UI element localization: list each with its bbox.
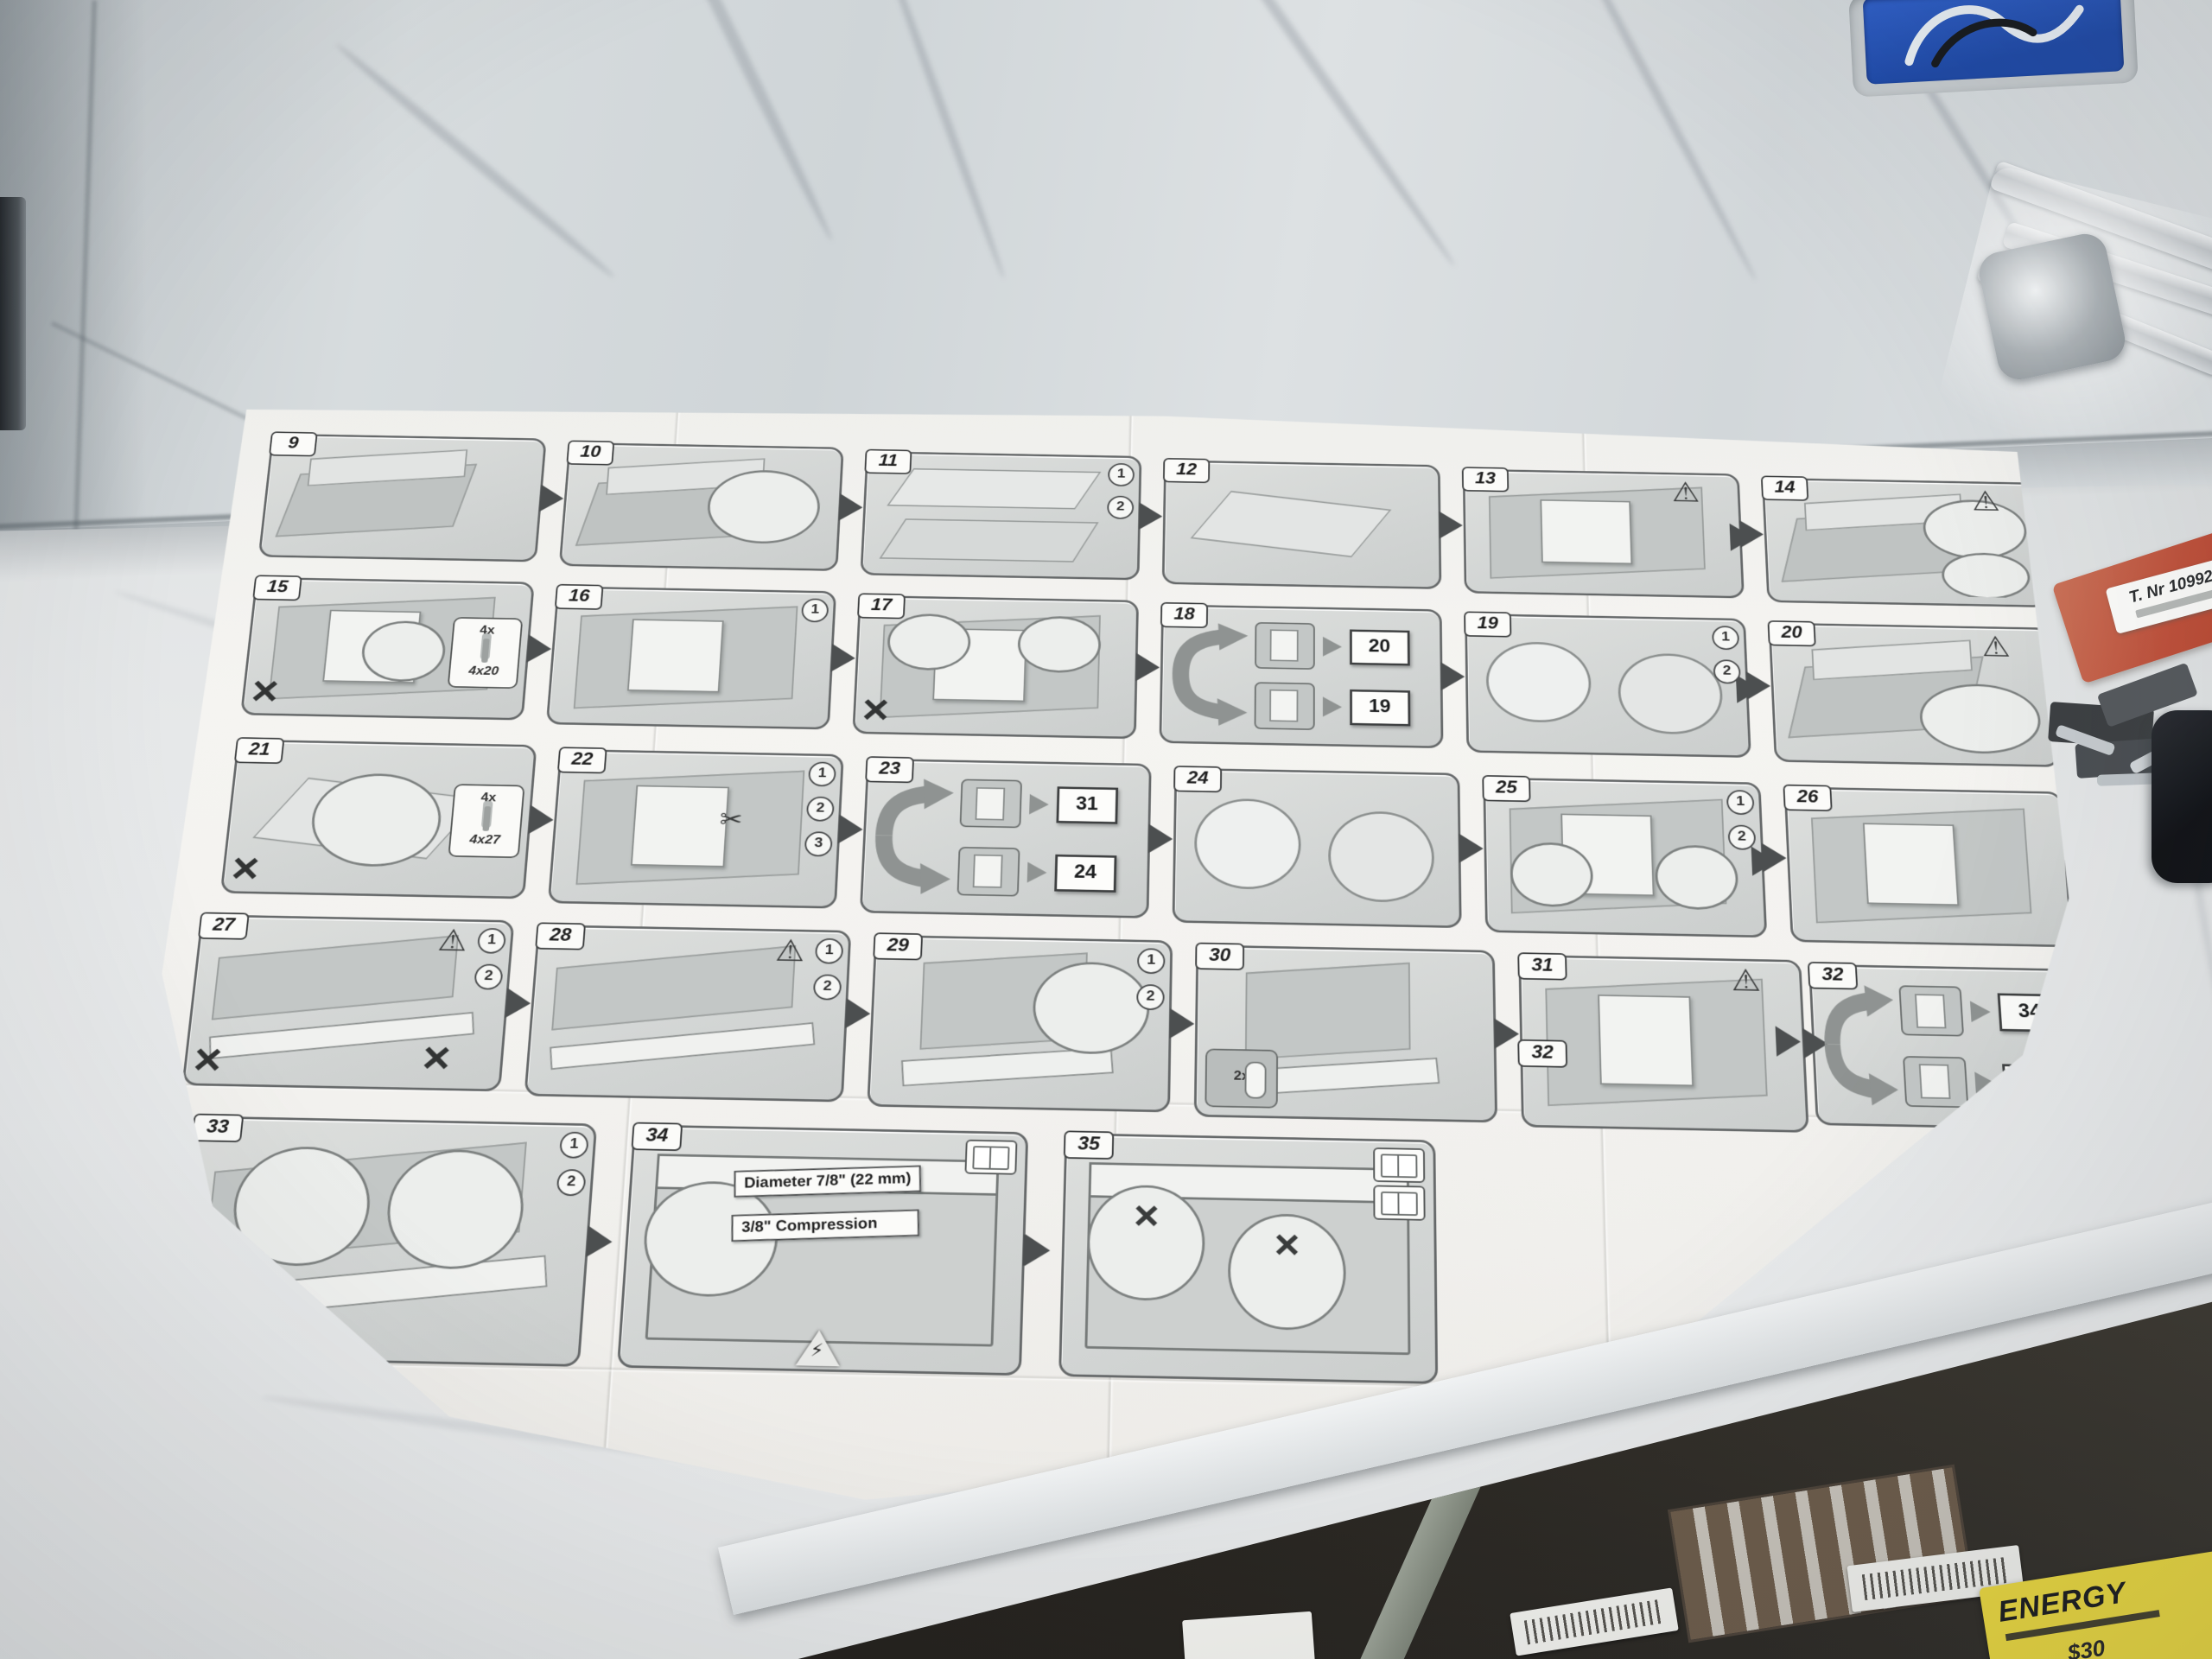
step-number: 1 bbox=[1108, 463, 1135, 486]
panel-number-badge: 22 bbox=[557, 747, 607, 773]
panel-number-badge: 28 bbox=[535, 922, 586, 950]
diagram-text-labels: Diameter 7/8" (22 mm)3/8" Compression bbox=[731, 1166, 922, 1241]
step-number: 1 bbox=[808, 761, 836, 786]
detail-circle bbox=[1032, 961, 1150, 1055]
fork-arrows-icon bbox=[1170, 613, 1255, 735]
panel-diagram-door bbox=[557, 597, 826, 721]
warning-triangle-icon: ⚠ bbox=[1731, 965, 1761, 996]
panel-number-badge: 15 bbox=[252, 575, 302, 601]
panel-number-badge: 13 bbox=[1462, 467, 1509, 492]
step-panel-12: 12 bbox=[1162, 460, 1442, 589]
step-panel-34: 34Diameter 7/8" (22 mm)3/8" Compression bbox=[617, 1124, 1028, 1376]
detail-circle bbox=[705, 469, 822, 544]
option-thumbnail bbox=[1254, 682, 1314, 730]
detail-circle bbox=[1941, 552, 2031, 599]
step-panel-21: 21×4x4x27 bbox=[220, 740, 537, 899]
step-number: 2 bbox=[1136, 984, 1165, 1010]
next-panel-arrow-icon bbox=[830, 644, 855, 672]
panel-number-badge: 20 bbox=[1767, 620, 1815, 646]
warning-triangle-icon: ⚠ bbox=[1971, 487, 2001, 515]
panel-number-badge: 25 bbox=[1482, 775, 1530, 802]
panel-number-badge: 14 bbox=[1761, 475, 1808, 500]
manual-book-icon bbox=[964, 1140, 1017, 1175]
panel-number-badge: 11 bbox=[864, 449, 912, 474]
step-number: 2 bbox=[474, 963, 504, 989]
screw-icon bbox=[481, 639, 490, 663]
option-thumbnail bbox=[957, 847, 1020, 897]
next-panel-arrow-icon bbox=[845, 998, 871, 1029]
panel-diagram-kick bbox=[878, 946, 1161, 1103]
outlet-wires bbox=[1872, 0, 2108, 75]
arrow-right-icon bbox=[1323, 636, 1342, 656]
next-panel-arrow-icon bbox=[1730, 523, 1755, 550]
panel-number-badge: 27 bbox=[198, 912, 250, 940]
next-panel-arrow-icon bbox=[1025, 1234, 1051, 1266]
panel-number-badge: 23 bbox=[865, 756, 914, 783]
next-panel-arrow-icon bbox=[528, 804, 555, 834]
go-to-step-box: 19 bbox=[1350, 689, 1410, 726]
panel-diagram-iso bbox=[270, 444, 537, 553]
next-panel-arrow-icon bbox=[1169, 1008, 1194, 1039]
step-panel-23: 23 3124 bbox=[860, 759, 1152, 918]
step-panel-35: 35 bbox=[1058, 1133, 1438, 1384]
screw-count: 4x bbox=[454, 623, 521, 639]
step-number: 2 bbox=[1107, 496, 1134, 519]
fork-arrows-icon bbox=[871, 768, 962, 906]
step-panel-16: 161 bbox=[546, 586, 836, 729]
option-thumbnail bbox=[1903, 1056, 1968, 1108]
fork-arrows-icon bbox=[1820, 974, 1906, 1116]
panel-number-badge: 21 bbox=[234, 737, 285, 764]
panel-number-badge: 16 bbox=[555, 584, 604, 610]
kitchen-photo-scene: 91011121213⚠14⚠15×4x4x2016117×18 2019191… bbox=[0, 0, 2212, 1659]
panel-diagram-flat bbox=[1173, 470, 1432, 580]
detail-circle bbox=[1227, 1213, 1346, 1332]
next-panel-arrow-icon bbox=[1440, 662, 1465, 690]
detail-circle bbox=[1510, 842, 1593, 907]
detail-circle bbox=[1655, 845, 1739, 911]
detail-circle bbox=[308, 772, 445, 868]
step-number: 1 bbox=[815, 938, 844, 964]
step-number: 2 bbox=[813, 974, 842, 1000]
detail-circle bbox=[359, 620, 448, 683]
next-panel-arrow-icon bbox=[1139, 502, 1163, 530]
arrow-right-icon bbox=[1323, 696, 1342, 717]
panel-diagram-door bbox=[559, 760, 833, 899]
next-panel-arrow-icon bbox=[1135, 653, 1160, 682]
step-panel-17: 17× bbox=[852, 595, 1139, 739]
step-panel-28: 2812⚠ bbox=[524, 925, 851, 1103]
step-number-list: 12 bbox=[1136, 948, 1165, 1010]
dishwasher-base-grille bbox=[1668, 1465, 1975, 1643]
detail-circle bbox=[887, 613, 972, 671]
next-panel-arrow-icon bbox=[838, 814, 864, 843]
option-thumbnail bbox=[959, 779, 1022, 829]
panel-number-badge: 10 bbox=[566, 441, 614, 466]
step-panel-14: 14⚠ bbox=[1762, 478, 2048, 607]
panel-number-badge-secondary: 32 bbox=[1517, 1039, 1567, 1068]
fork-option: 19 bbox=[1254, 682, 1433, 732]
step-number: 1 bbox=[801, 598, 829, 622]
step-panel-29: 2912 bbox=[867, 935, 1173, 1113]
panel-number-badge: 9 bbox=[269, 431, 318, 456]
fork-option: 31 bbox=[959, 779, 1141, 831]
option-thumbnail bbox=[1255, 622, 1315, 670]
next-panel-arrow-icon bbox=[586, 1225, 613, 1257]
scissors-icon: ✂ bbox=[719, 804, 744, 834]
panel-number-badge: 32 bbox=[1808, 962, 1858, 989]
option-thumbnail bbox=[1898, 985, 1964, 1036]
step-panel-31: 3132⚠ bbox=[1518, 955, 1808, 1133]
step-number: 1 bbox=[1712, 626, 1739, 650]
step-panel-13: 13⚠ bbox=[1463, 469, 1745, 599]
step-panel-15: 15×4x4x20 bbox=[240, 577, 535, 721]
manual-book-icon bbox=[1373, 1147, 1425, 1183]
step-panel-11: 1112 bbox=[860, 451, 1141, 580]
fork-options: 2019 bbox=[1254, 615, 1433, 739]
step-number-list: 12 bbox=[1712, 626, 1741, 684]
panel-diagram-boards bbox=[871, 461, 1132, 571]
next-panel-arrow-icon bbox=[1459, 833, 1484, 863]
step-number-list: 12 bbox=[474, 928, 506, 990]
arrow-right-icon bbox=[1029, 794, 1049, 815]
x-mark-icon: × bbox=[191, 1037, 224, 1082]
step-panel-25: 2512 bbox=[1483, 778, 1767, 938]
step-number: 2 bbox=[1713, 659, 1741, 683]
step-panel-18: 18 2019 bbox=[1159, 604, 1443, 748]
step-panel-20: 20⚠ bbox=[1769, 622, 2060, 766]
x-mark-icon: × bbox=[229, 847, 261, 890]
step-number-list: 1 bbox=[801, 598, 829, 622]
step-panel-27: 2712××⚠ bbox=[181, 914, 514, 1091]
go-to-step-box: 24 bbox=[1054, 855, 1116, 893]
screw-quantity-box: 4x4x20 bbox=[448, 617, 524, 689]
next-panel-arrow-icon bbox=[1148, 823, 1173, 853]
panel-diagram-door bbox=[1494, 788, 1757, 927]
next-panel-arrow-icon bbox=[505, 988, 531, 1019]
go-to-step-box: 20 bbox=[1350, 629, 1410, 665]
step-panel-19: 1912 bbox=[1465, 613, 1751, 758]
panel-number-badge: 24 bbox=[1173, 766, 1222, 792]
step-number-list: 12 bbox=[813, 938, 844, 1001]
panel-number-badge: 33 bbox=[191, 1114, 244, 1142]
parts-quantity-box: 2x bbox=[1205, 1048, 1278, 1108]
step-number-list: 12 bbox=[1107, 463, 1135, 519]
screw-icon bbox=[482, 806, 491, 831]
arrow-right-icon bbox=[1970, 1001, 1991, 1023]
barcode bbox=[1524, 1599, 1664, 1645]
step-panel-26: 26 bbox=[1783, 786, 2073, 947]
panel-diagram-iso bbox=[569, 453, 833, 563]
next-panel-arrow-icon bbox=[1751, 846, 1777, 876]
barcode-sticker bbox=[1510, 1587, 1678, 1656]
screw-quantity-box: 4x4x27 bbox=[448, 784, 524, 858]
step-number: 2 bbox=[806, 797, 835, 822]
arrow-right-icon bbox=[1027, 861, 1046, 882]
diagram-text-label: Diameter 7/8" (22 mm) bbox=[734, 1166, 922, 1198]
panel-diagram-door bbox=[1795, 798, 2062, 938]
x-mark-icon: × bbox=[421, 1036, 453, 1081]
next-panel-arrow-icon bbox=[1776, 1026, 1802, 1057]
step-number: 1 bbox=[1726, 790, 1755, 815]
next-panel-arrow-icon bbox=[839, 493, 864, 521]
electrical-hazard-icon bbox=[795, 1330, 841, 1366]
step-number: 1 bbox=[1137, 948, 1166, 974]
step-number: 1 bbox=[477, 928, 507, 954]
panel-number-badge: 17 bbox=[857, 593, 906, 619]
panel-number-badge: 26 bbox=[1783, 785, 1832, 811]
diagram-text-label: 3/8" Compression bbox=[732, 1210, 920, 1243]
step-number: 3 bbox=[804, 831, 833, 856]
next-panel-arrow-icon bbox=[539, 484, 565, 512]
step-panel-10: 10 bbox=[559, 442, 844, 571]
detail-circle bbox=[1017, 615, 1102, 673]
panel-number-badge: 12 bbox=[1163, 458, 1210, 483]
branch-choice-diagram: 3124 bbox=[871, 768, 1141, 909]
go-to-step-box: 31 bbox=[1056, 787, 1118, 824]
detail-circle bbox=[1086, 1184, 1206, 1301]
panel-number-badge: 31 bbox=[1517, 952, 1567, 980]
fork-option: 24 bbox=[957, 847, 1140, 899]
fork-option: 20 bbox=[1255, 622, 1433, 672]
x-mark-icon: × bbox=[250, 671, 281, 712]
next-panel-arrow-icon bbox=[526, 634, 552, 663]
panel-diagram-feet bbox=[1475, 624, 1740, 748]
panel-number-badge: 30 bbox=[1195, 943, 1244, 970]
panel-number-badge: 29 bbox=[873, 932, 923, 960]
panel-diagram-feet bbox=[1183, 779, 1451, 918]
white-label bbox=[1182, 1611, 1315, 1659]
smartphone-corner bbox=[2152, 710, 2212, 883]
next-panel-arrow-icon bbox=[1439, 511, 1463, 538]
warning-triangle-icon: ⚠ bbox=[1671, 479, 1700, 506]
step-panel-30: 302x bbox=[1194, 944, 1497, 1122]
fork-options: 3124 bbox=[957, 770, 1141, 909]
screw-size: 4x27 bbox=[450, 832, 519, 848]
step-number: 2 bbox=[1727, 824, 1756, 849]
step-number: 1 bbox=[559, 1132, 589, 1159]
detail-circle bbox=[1917, 683, 2043, 755]
electrical-outlet-box bbox=[1863, 0, 2125, 85]
panel-number-badge: 19 bbox=[1464, 611, 1511, 637]
panel-number-badge: 35 bbox=[1064, 1130, 1114, 1160]
step-number-list: 12 bbox=[556, 1132, 589, 1197]
manual-book-icon bbox=[1373, 1185, 1425, 1220]
branch-choice-diagram: 2019 bbox=[1170, 613, 1433, 739]
metal-bracket bbox=[1975, 230, 2129, 384]
parts-bag-label: T. Nr 10992020 bbox=[2106, 549, 2212, 634]
detail-circle bbox=[382, 1148, 528, 1270]
step-panel-24: 24 bbox=[1173, 768, 1462, 929]
step-panel-9: 9 bbox=[258, 434, 547, 563]
panel-diagram-door bbox=[863, 606, 1128, 729]
x-mark-icon: × bbox=[861, 689, 890, 730]
panel-number-badge: 18 bbox=[1160, 602, 1208, 628]
step-number: 2 bbox=[556, 1169, 587, 1197]
step-number-list: 12 bbox=[1726, 790, 1757, 850]
screw-count: 4x bbox=[454, 790, 523, 805]
screw-size: 4x20 bbox=[450, 664, 518, 679]
warning-triangle-icon: ⚠ bbox=[436, 925, 468, 956]
panel-number-badge: 34 bbox=[631, 1122, 683, 1152]
step-number-list: 123 bbox=[804, 761, 836, 856]
step-panel-22: 22123✂ bbox=[548, 749, 844, 909]
warning-triangle-icon: ⚠ bbox=[774, 936, 805, 966]
warning-triangle-icon: ⚠ bbox=[1980, 632, 2011, 661]
next-panel-arrow-icon bbox=[1494, 1018, 1519, 1049]
appliance-edge bbox=[0, 197, 26, 430]
